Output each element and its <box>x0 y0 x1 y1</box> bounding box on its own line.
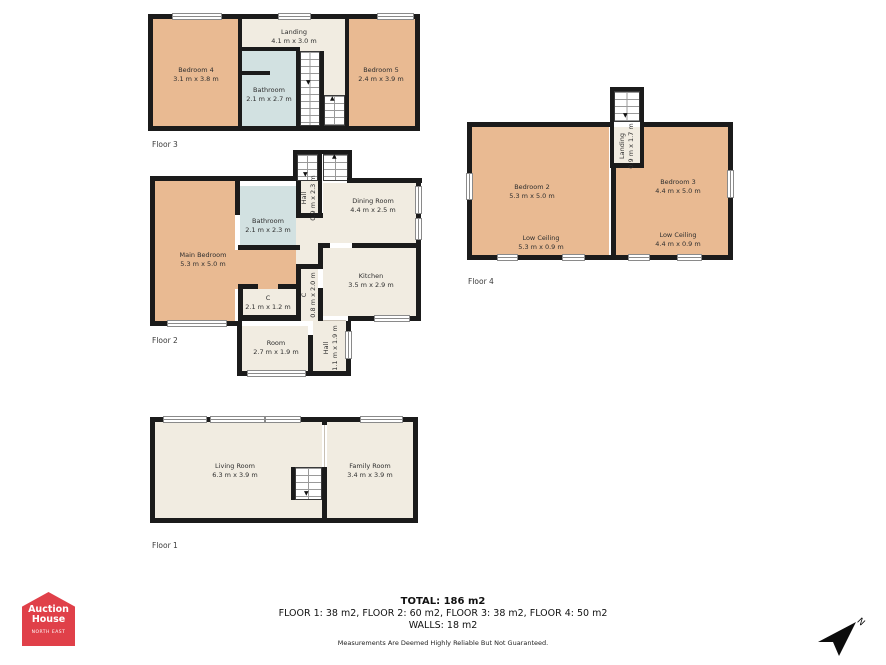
room-label-kitchen: Kitchen3.5 m x 2.9 m <box>331 272 411 290</box>
disclaimer-text: Measurements Are Deemed Highly Reliable … <box>0 639 886 647</box>
room-name: Bedroom 2 <box>492 183 572 192</box>
room-dims: 0.8 m x 2.0 m <box>309 272 318 317</box>
wall <box>610 87 644 91</box>
room-name: Room <box>236 339 316 348</box>
wall <box>611 168 616 255</box>
room-name: Landing <box>254 28 334 37</box>
floor-label: Floor 1 <box>152 541 178 550</box>
logo-subtext: NORTH EAST <box>32 630 66 635</box>
wall <box>150 176 155 326</box>
room-dims: 5.3 m x 5.0 m <box>163 260 243 269</box>
room-label-landing: Landing0.9 m x 1.7 m <box>618 106 636 186</box>
wall <box>610 87 614 122</box>
window <box>377 13 414 20</box>
room-dims: 5.3 m x 0.9 m <box>501 243 581 252</box>
wall <box>640 87 644 122</box>
room-bathroom <box>240 186 296 245</box>
room-label-main-bedroom: Main Bedroom5.3 m x 5.0 m <box>163 251 243 269</box>
room-dims: 6.3 m x 3.9 m <box>195 471 275 480</box>
room-label-landing: Landing4.1 m x 3.0 m <box>254 28 334 46</box>
room-name: C <box>300 293 309 298</box>
room-dims: 0.9 m x 1.7 m <box>627 123 636 168</box>
room-label-c-closet: C2.1 m x 1.2 m <box>228 294 308 312</box>
room-dims: 3.4 m x 3.9 m <box>330 471 410 480</box>
window <box>210 416 265 423</box>
wall <box>148 126 420 131</box>
room-name: Low Ceiling <box>501 234 581 243</box>
room-label-bathroom: Bathroom2.1 m x 2.3 m <box>228 217 308 235</box>
window <box>247 370 306 377</box>
room-label-bedroom-3: Bedroom 34.4 m x 5.0 m <box>638 178 718 196</box>
total-area-text: TOTAL: 186 m2 <box>0 596 886 607</box>
wall <box>238 315 301 321</box>
window <box>415 186 422 214</box>
window <box>265 416 301 423</box>
room-dims: 3.1 m x 3.8 m <box>156 75 236 84</box>
floor-4-plan: ▼ Bedroom 25.3 m x 5.0 m Bedroom 34.4 m … <box>465 85 735 295</box>
wall <box>318 243 323 266</box>
wall <box>242 47 300 51</box>
room-name: Bathroom <box>229 86 309 95</box>
wall <box>644 122 733 127</box>
wall <box>318 151 322 216</box>
room-name: Bedroom 5 <box>341 66 421 75</box>
floor-1-plan: ▼ Living Room6.3 m x 3.9 m Family Room3.… <box>148 415 420 555</box>
window <box>628 254 650 261</box>
wall <box>322 417 327 425</box>
room-dims: 4.4 m x 0.9 m <box>638 240 718 249</box>
window <box>415 218 422 240</box>
wall <box>293 150 352 154</box>
room-dims: 2.1 m x 2.3 m <box>228 226 308 235</box>
window <box>562 254 585 261</box>
window <box>466 173 473 200</box>
logo-text-line2: House <box>32 615 65 625</box>
window <box>497 254 518 261</box>
room-label-bathroom: Bathroom2.1 m x 2.7 m <box>229 86 309 104</box>
wall <box>242 71 270 75</box>
room-dims: 3.5 m x 2.9 m <box>331 281 411 290</box>
room-label-bedroom-2: Bedroom 25.3 m x 5.0 m <box>492 183 572 201</box>
floor-areas-text: FLOOR 1: 38 m2, FLOOR 2: 60 m2, FLOOR 3:… <box>0 608 886 619</box>
room-name: Bathroom <box>228 217 308 226</box>
wall <box>322 467 327 523</box>
room-name: Main Bedroom <box>163 251 243 260</box>
window <box>360 416 403 423</box>
room-name: Hall <box>300 192 309 204</box>
window <box>167 320 227 327</box>
room-dims: 1.1 m x 1.9 m <box>331 325 340 370</box>
window <box>345 331 352 359</box>
floorplan-page: ▼ ▲ Bedroom 43.1 m x 3.8 m Landing4.1 m … <box>0 0 886 665</box>
wall <box>150 176 297 181</box>
stair-arrow-icon: ▼ <box>304 491 309 497</box>
wall <box>150 518 418 523</box>
wall <box>352 243 416 248</box>
wall <box>238 245 300 250</box>
room-label-living-room: Living Room6.3 m x 3.9 m <box>195 462 275 480</box>
wall <box>348 150 352 181</box>
window <box>172 13 222 20</box>
room-dims: 2.7 m x 1.9 m <box>236 348 316 357</box>
walls-area-text: WALLS: 18 m2 <box>0 620 886 631</box>
room-name: Family Room <box>330 462 410 471</box>
floor-2-plan: ▼ ▲ Main Bedroom5.3 m x 5.0 m Bathroom2.… <box>148 148 422 380</box>
door-opening <box>324 425 325 467</box>
window <box>677 254 702 261</box>
window <box>278 13 311 20</box>
window <box>163 416 207 423</box>
wall <box>235 181 240 215</box>
room-dims: 4.4 m x 2.5 m <box>333 206 413 215</box>
wall <box>323 243 330 248</box>
room-name: Low Ceiling <box>638 231 718 240</box>
wall <box>150 417 155 523</box>
room-name: Bedroom 3 <box>638 178 718 187</box>
wall <box>413 417 418 523</box>
north-label: N <box>854 616 866 628</box>
stair-arrow-icon: ▲ <box>332 154 337 160</box>
room-name: Landing <box>618 133 627 159</box>
room-label-c-vertical: C0.8 m x 2.0 m <box>300 255 318 335</box>
wall <box>291 467 295 500</box>
room-label-family-room: Family Room3.4 m x 3.9 m <box>330 462 410 480</box>
room-name: C <box>228 294 308 303</box>
floor-3-plan: ▼ ▲ Bedroom 43.1 m x 3.8 m Landing4.1 m … <box>148 14 420 159</box>
wall <box>347 178 422 183</box>
room-label-hall-bottom: Hall1.1 m x 1.9 m <box>322 308 340 388</box>
window <box>374 315 410 322</box>
room-name: Dining Room <box>333 197 413 206</box>
room-label-low-ceiling-right: Low Ceiling4.4 m x 0.9 m <box>638 231 718 249</box>
area-summary: TOTAL: 186 m2 FLOOR 1: 38 m2, FLOOR 2: 6… <box>0 596 886 647</box>
wall <box>148 14 153 131</box>
room-label-bedroom-5: Bedroom 52.4 m x 3.9 m <box>341 66 421 84</box>
wall <box>467 122 610 127</box>
room-dims: 2.4 m x 3.9 m <box>341 75 421 84</box>
room-label-low-ceiling-left: Low Ceiling5.3 m x 0.9 m <box>501 234 581 252</box>
room-name: Kitchen <box>331 272 411 281</box>
floor-label: Floor 2 <box>152 336 178 345</box>
north-arrow-icon: N <box>812 610 868 665</box>
stair-arrow-icon: ▲ <box>330 96 335 102</box>
wall <box>320 51 324 126</box>
room-dims: 4.4 m x 5.0 m <box>638 187 718 196</box>
floor-label: Floor 4 <box>468 277 494 286</box>
room-name: Bedroom 4 <box>156 66 236 75</box>
wall <box>610 122 614 165</box>
room-dims: 4.1 m x 3.0 m <box>254 37 334 46</box>
room-label-room: Room2.7 m x 1.9 m <box>236 339 316 357</box>
room-name: Living Room <box>195 462 275 471</box>
room-label-hall: Hall0.9 m x 2.3 m <box>300 158 318 238</box>
room-dims: 2.1 m x 1.2 m <box>228 303 308 312</box>
room-dims: 0.9 m x 2.3 m <box>309 175 318 220</box>
room-dims: 2.1 m x 2.7 m <box>229 95 309 104</box>
room-dims: 5.3 m x 5.0 m <box>492 192 572 201</box>
room-label-dining-room: Dining Room4.4 m x 2.5 m <box>333 197 413 215</box>
wall <box>640 122 644 165</box>
window <box>727 170 734 198</box>
room-name: Hall <box>322 342 331 354</box>
room-label-bedroom-4: Bedroom 43.1 m x 3.8 m <box>156 66 236 84</box>
